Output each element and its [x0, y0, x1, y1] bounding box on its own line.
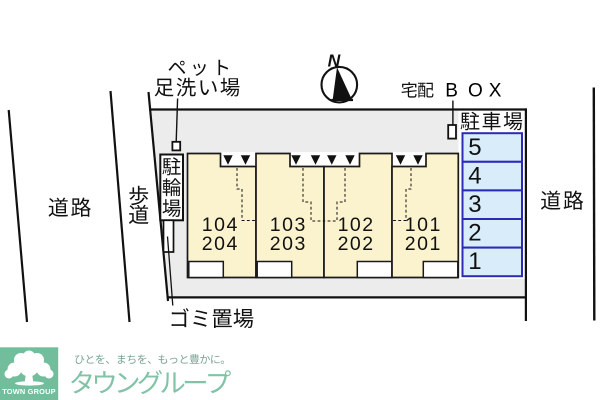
- svg-text:4: 4: [468, 162, 481, 189]
- svg-text:202: 202: [338, 233, 375, 255]
- svg-text:204: 204: [202, 233, 239, 255]
- svg-text:5: 5: [468, 134, 481, 161]
- svg-text:1: 1: [468, 248, 481, 275]
- svg-text:2: 2: [468, 220, 481, 247]
- svg-text:B: B: [445, 80, 458, 101]
- svg-text:203: 203: [270, 233, 307, 255]
- svg-text:X: X: [489, 80, 502, 101]
- svg-text:N: N: [328, 51, 341, 71]
- svg-text:TOWN GROUP: TOWN GROUP: [2, 387, 56, 396]
- svg-text:201: 201: [405, 233, 442, 255]
- svg-text:O: O: [468, 80, 483, 101]
- svg-text:3: 3: [468, 191, 481, 218]
